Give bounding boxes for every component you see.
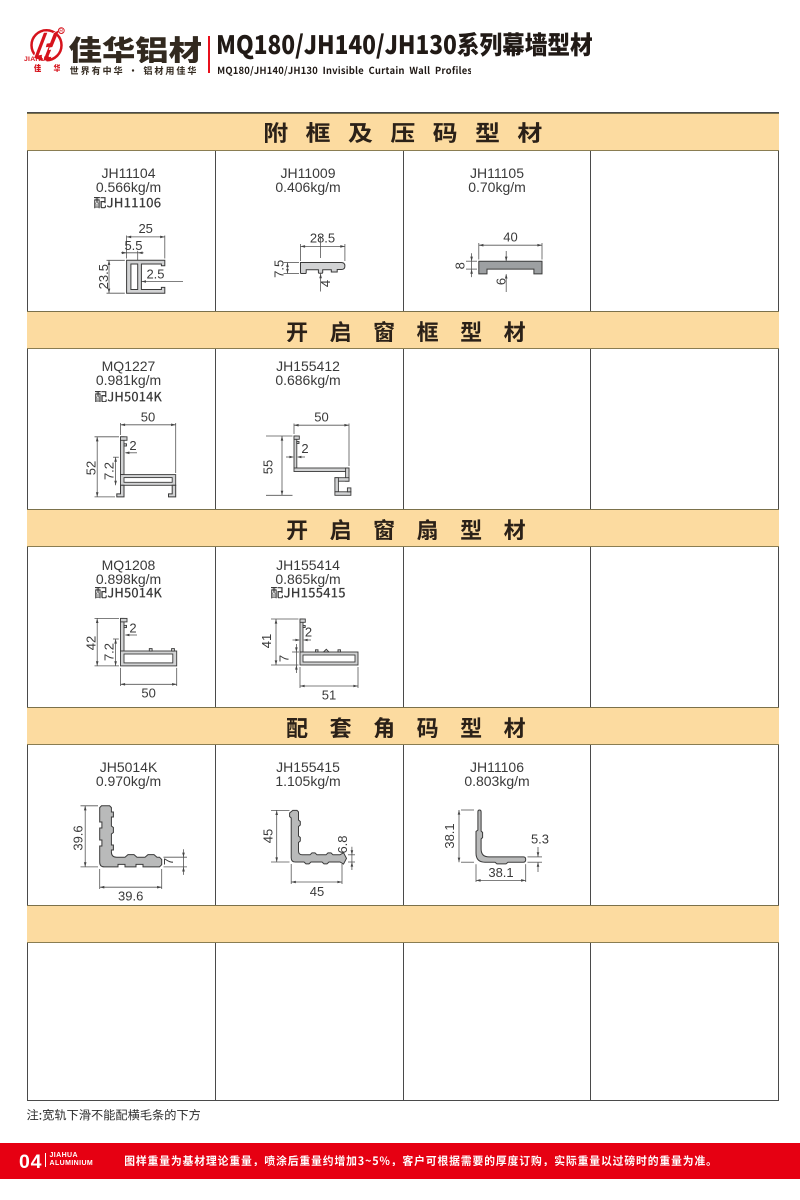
svg-text:2.5: 2.5 bbox=[146, 267, 164, 282]
svg-text:2: 2 bbox=[129, 438, 136, 453]
svg-text:7: 7 bbox=[161, 858, 176, 865]
svg-text:28.5: 28.5 bbox=[310, 231, 335, 246]
svg-text:2: 2 bbox=[129, 620, 136, 635]
svg-text:5.5: 5.5 bbox=[124, 238, 142, 253]
svg-text:7.2: 7.2 bbox=[102, 643, 117, 661]
svg-text:45: 45 bbox=[310, 884, 324, 899]
svg-text:25: 25 bbox=[138, 221, 152, 236]
svg-text:41: 41 bbox=[260, 634, 274, 648]
svg-text:50: 50 bbox=[141, 409, 155, 424]
svg-text:39.6: 39.6 bbox=[118, 889, 143, 904]
svg-text:8: 8 bbox=[455, 262, 468, 269]
svg-text:55: 55 bbox=[260, 460, 275, 474]
svg-text:51: 51 bbox=[322, 687, 336, 702]
svg-text:23.5: 23.5 bbox=[96, 264, 111, 289]
svg-text:7: 7 bbox=[277, 655, 292, 662]
svg-text:6: 6 bbox=[493, 278, 508, 285]
svg-text:40: 40 bbox=[503, 230, 517, 245]
svg-text:42: 42 bbox=[84, 636, 99, 650]
svg-text:50: 50 bbox=[141, 685, 155, 700]
svg-text:38.1: 38.1 bbox=[488, 865, 513, 880]
svg-text:5.3: 5.3 bbox=[531, 832, 549, 847]
svg-text:39.6: 39.6 bbox=[71, 825, 86, 850]
svg-text:45: 45 bbox=[261, 829, 276, 843]
svg-text:52: 52 bbox=[84, 461, 99, 475]
svg-text:38.1: 38.1 bbox=[442, 823, 457, 848]
svg-text:4: 4 bbox=[318, 280, 333, 287]
svg-text:50: 50 bbox=[314, 410, 328, 425]
svg-text:7.2: 7.2 bbox=[102, 462, 117, 480]
svg-text:7.5: 7.5 bbox=[271, 260, 286, 278]
svg-text:2: 2 bbox=[301, 441, 308, 456]
svg-text:R: R bbox=[59, 29, 63, 35]
svg-text:6.8: 6.8 bbox=[335, 835, 350, 853]
svg-text:2: 2 bbox=[305, 625, 312, 640]
